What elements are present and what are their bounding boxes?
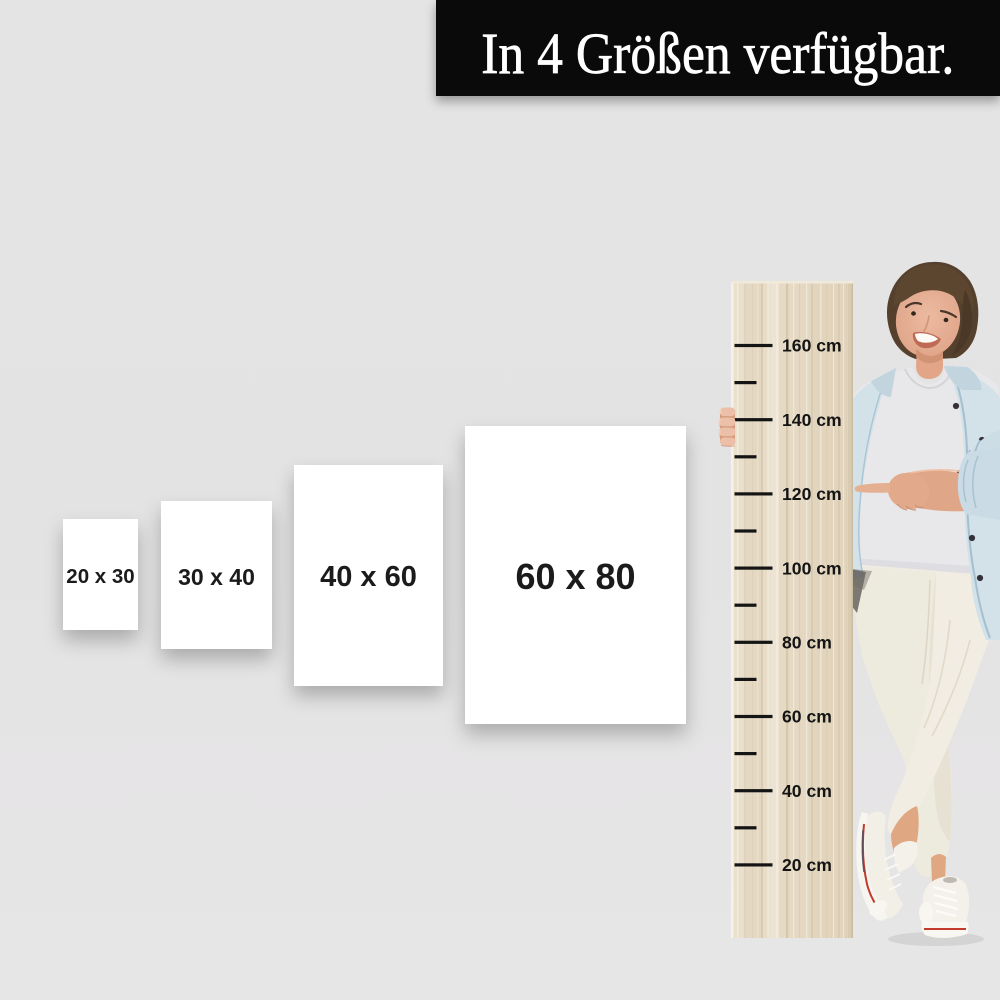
svg-text:20 cm: 20 cm [782, 855, 832, 875]
svg-text:80 cm: 80 cm [782, 633, 832, 653]
svg-text:140 cm: 140 cm [782, 410, 842, 430]
svg-text:160 cm: 160 cm [782, 336, 842, 356]
svg-text:120 cm: 120 cm [782, 484, 842, 504]
svg-text:100 cm: 100 cm [782, 558, 842, 578]
svg-text:40 cm: 40 cm [782, 781, 832, 801]
svg-text:60 cm: 60 cm [782, 707, 832, 727]
